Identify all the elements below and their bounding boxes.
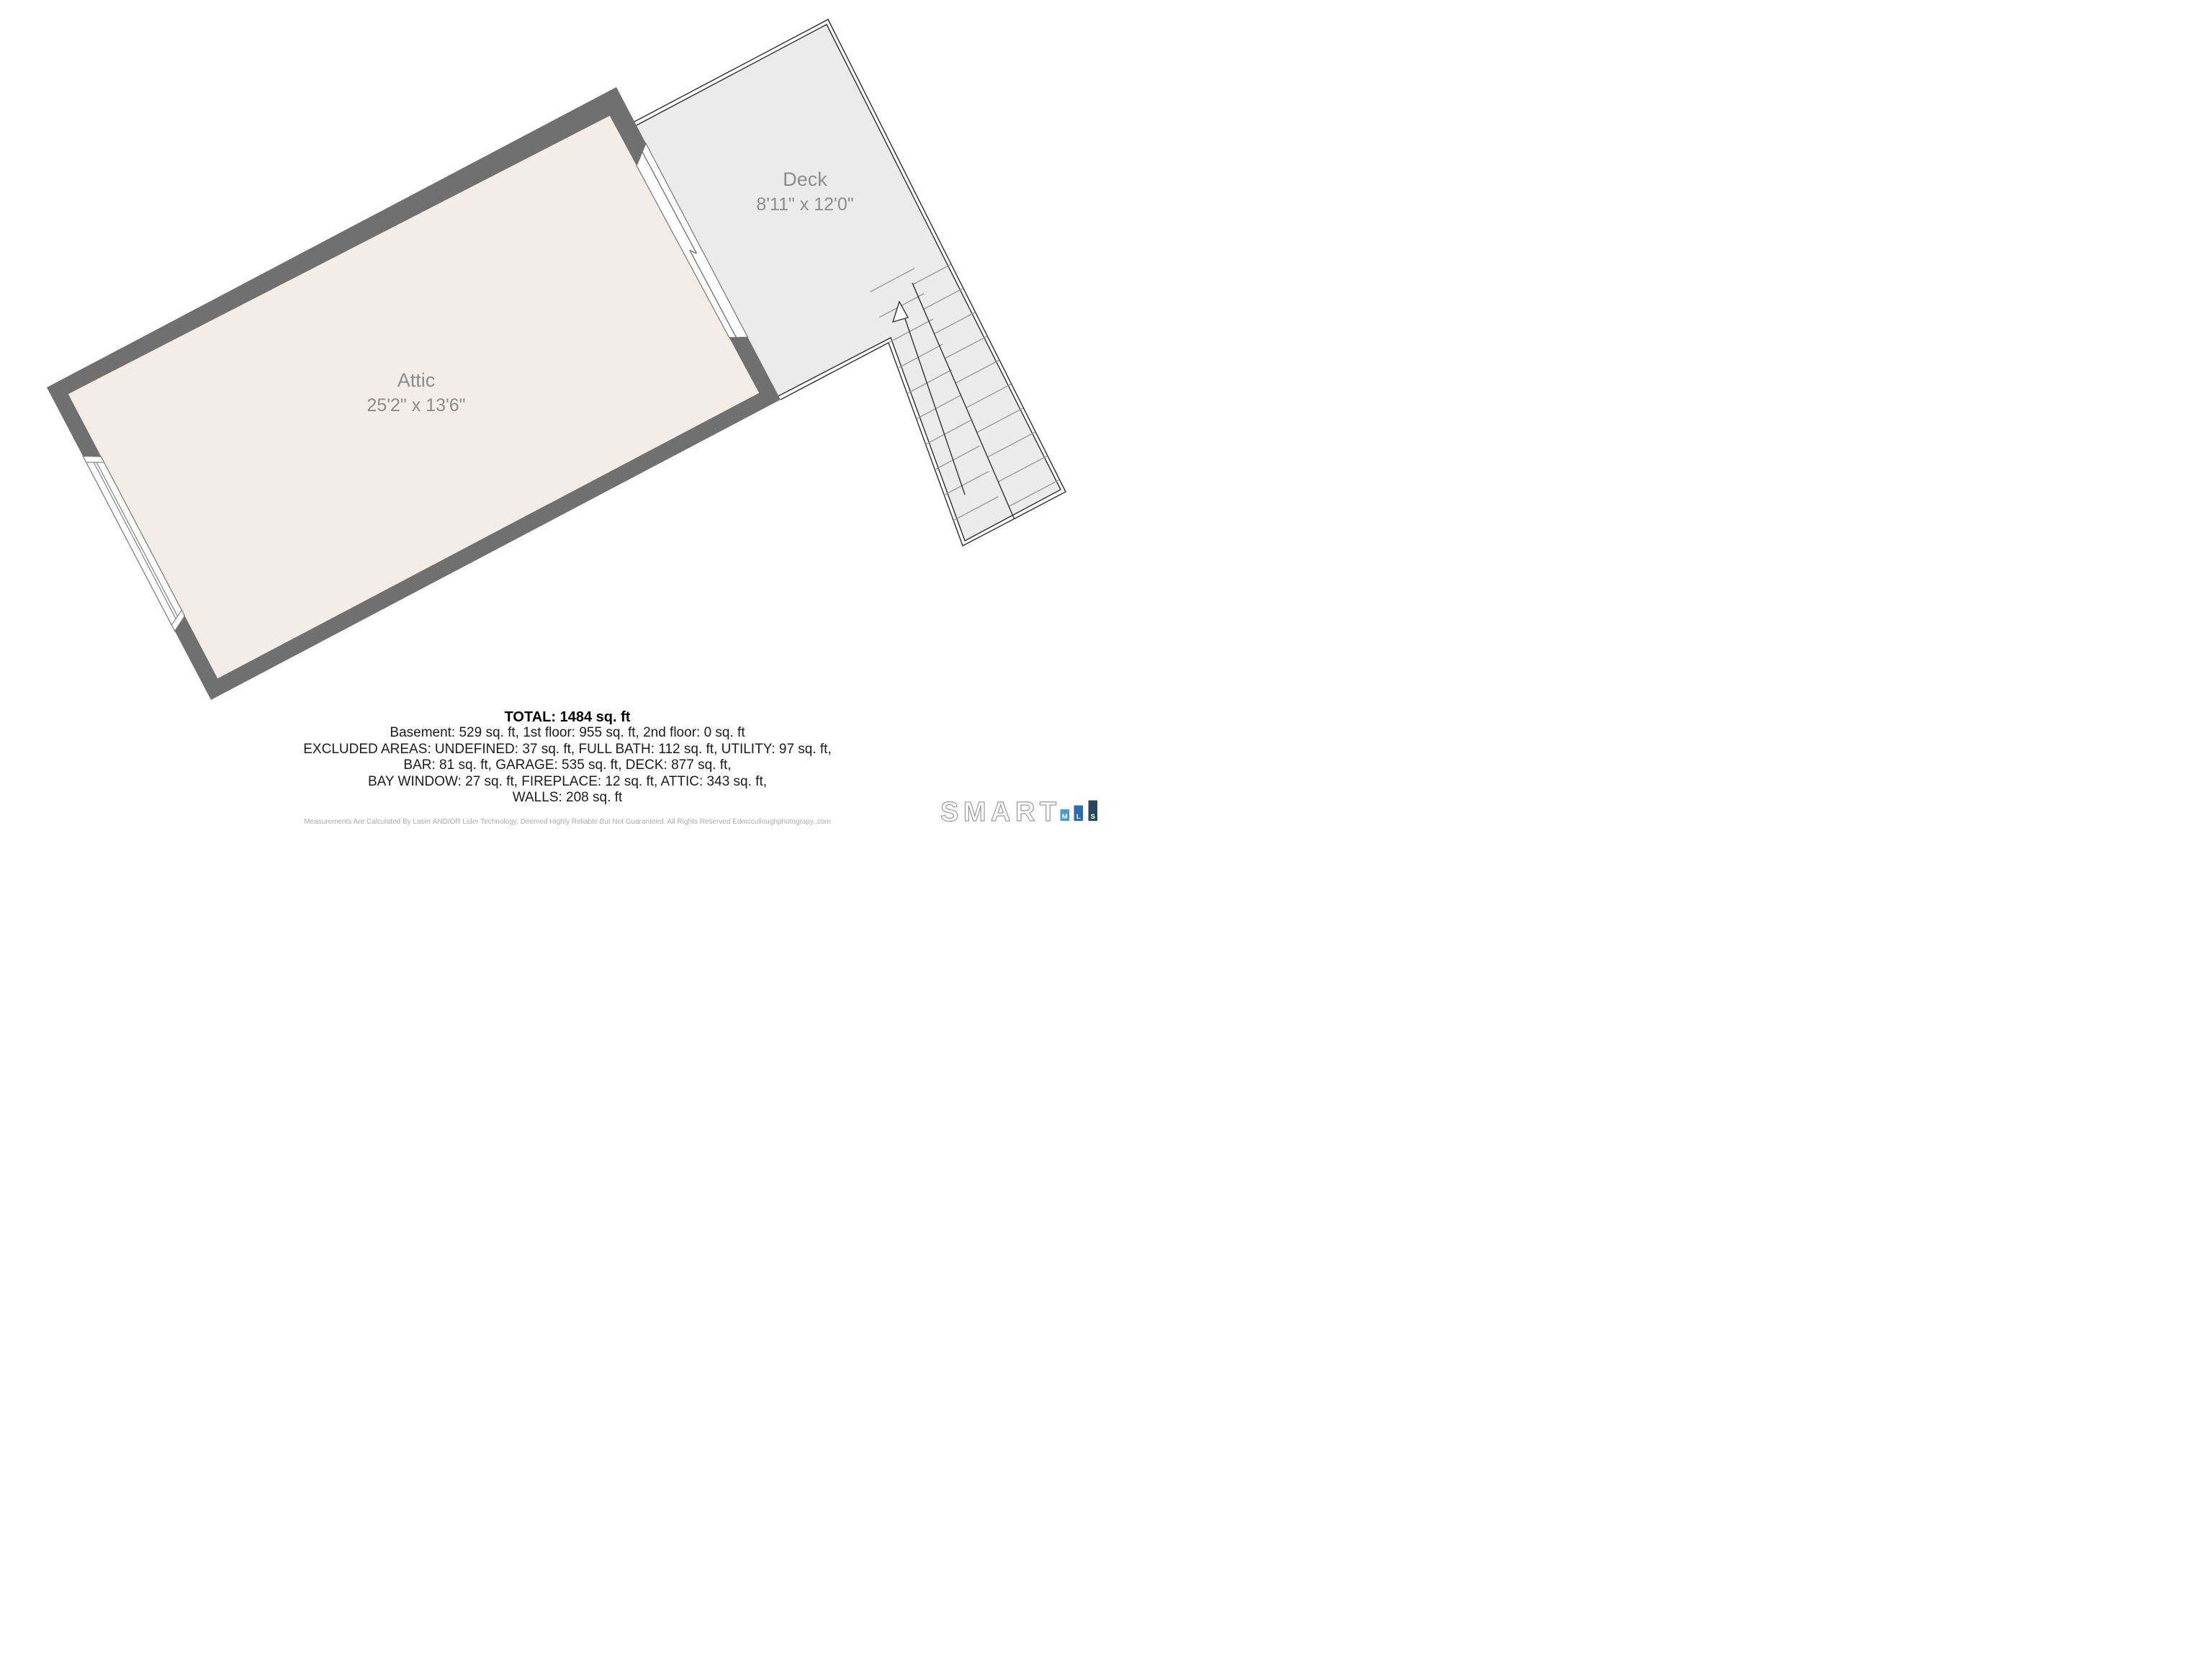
logo-bar-chart-icon: M L S — [1061, 801, 1098, 822]
measurement-summary: TOTAL: 1484 sq. ft Basement: 529 sq. ft,… — [207, 709, 927, 806]
logo-bar-m-letter: M — [1062, 813, 1068, 821]
summary-line: WALLS: 208 sq. ft — [207, 790, 927, 806]
attic-dimensions: 25'2" x 13'6" — [367, 395, 465, 415]
attic-label: Attic — [397, 369, 436, 391]
summary-line: BAY WINDOW: 27 sq. ft, FIREPLACE: 12 sq.… — [207, 774, 927, 790]
deck-label: Deck — [783, 168, 827, 190]
total-area: TOTAL: 1484 sq. ft — [207, 709, 927, 725]
disclaimer-text: Measurements Are Calculated By Laser AND… — [207, 818, 927, 826]
summary-line: Basement: 529 sq. ft, 1st floor: 955 sq.… — [207, 725, 927, 741]
deck-dimensions: 8'11" x 12'0" — [756, 194, 853, 215]
floorplan-drawing: Attic 25'2" x 13'6" Deck 8'11" x 12'0" — [0, 0, 1106, 829]
summary-line: EXCLUDED AREAS: UNDEFINED: 37 sq. ft, FU… — [207, 742, 927, 757]
floorplan-page: Attic 25'2" x 13'6" Deck 8'11" x 12'0" T… — [0, 0, 1106, 829]
logo-bar-s-letter: S — [1091, 813, 1095, 821]
summary-line: BAR: 81 sq. ft, GARAGE: 535 sq. ft, DECK… — [207, 757, 927, 773]
smart-mls-logo: SMART M L S — [936, 794, 1106, 829]
logo-brand-text: SMART — [940, 797, 1061, 827]
logo-bar-l-letter: L — [1076, 813, 1081, 821]
